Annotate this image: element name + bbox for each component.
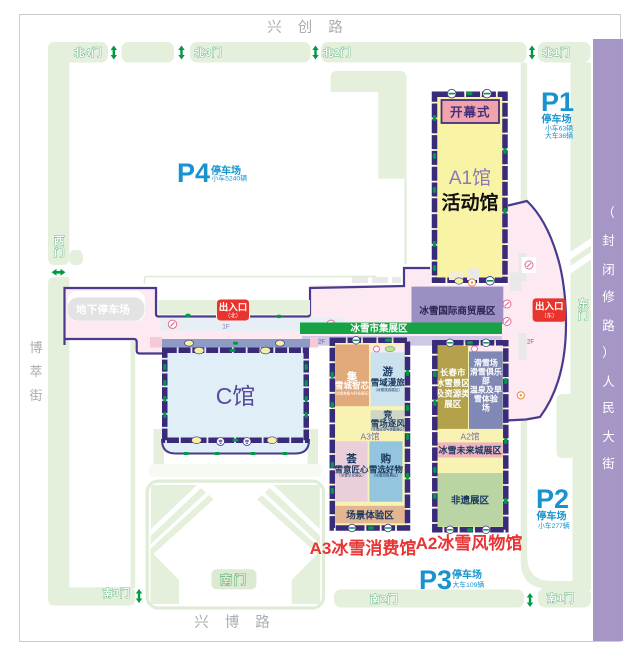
svg-text:大车109辆: 大车109辆 [453,580,485,589]
svg-text:长春市: 长春市 [440,368,466,378]
svg-text:冰雪市集展区: 冰雪市集展区 [350,323,408,335]
svg-text:南3门: 南3门 [102,587,130,600]
svg-text:场景体验区: 场景体验区 [346,510,394,522]
svg-text:活动馆: 活动馆 [441,191,498,214]
svg-text:A2冰雪风物馆: A2冰雪风物馆 [416,533,523,553]
svg-text:雪城智芯: 雪城智芯 [335,381,370,391]
svg-text:部: 部 [482,376,490,386]
svg-text:场: 场 [482,403,490,413]
svg-text:P2: P2 [536,484,569,514]
svg-text:出入口: 出入口 [219,302,248,314]
svg-text:小车277辆: 小车277辆 [538,521,570,530]
svg-text:（东）: （东） [541,312,558,320]
svg-text:A2馆: A2馆 [461,432,480,442]
svg-text:冰雪国际商贸展区: 冰雪国际商贸展区 [419,305,496,317]
svg-text:门: 门 [578,309,589,322]
svg-text:小车63辆: 小车63辆 [545,124,573,133]
svg-text:P3: P3 [419,565,452,595]
svg-text:温泉及旱: 温泉及旱 [470,385,502,395]
svg-text:A1馆: A1馆 [449,167,491,189]
svg-text:P4: P4 [177,158,210,188]
svg-text:北1门: 北1门 [542,46,570,59]
svg-text:封: 封 [602,234,615,248]
svg-text:博: 博 [29,340,42,355]
svg-text:西: 西 [54,235,65,247]
svg-text:冰雪未来城展区: 冰雪未来城展区 [438,445,501,456]
svg-text:南2门: 南2门 [370,593,398,606]
svg-text:P1: P1 [541,87,574,117]
svg-text:（北）: （北） [225,312,242,320]
svg-text:东: 东 [578,297,589,310]
svg-text:萃: 萃 [29,364,42,379]
svg-text:（: （ [602,206,615,220]
svg-text:冰雪景区: 冰雪景区 [436,378,471,388]
svg-text:大: 大 [602,430,615,444]
svg-text:街: 街 [602,457,615,471]
svg-text:）: ） [602,346,615,360]
svg-text:民: 民 [602,401,615,415]
svg-text:开幕式: 开幕式 [450,105,491,120]
svg-text:出入口: 出入口 [535,301,564,313]
svg-text:小车5240辆: 小车5240辆 [212,174,248,183]
svg-text:停车场: 停车场 [452,568,482,581]
svg-text:购: 购 [381,452,392,465]
svg-text:地下停车场: 地下停车场 [76,303,130,316]
svg-text:停车场: 停车场 [542,113,572,126]
svg-text:游: 游 [382,365,393,378]
svg-text:A3馆: A3馆 [361,432,380,442]
svg-text:滑雪场: 滑雪场 [474,358,498,368]
svg-text:门: 门 [54,246,65,259]
svg-text:南1门: 南1门 [546,592,574,605]
svg-text:人: 人 [602,375,615,389]
svg-text:雪体验: 雪体验 [474,394,499,404]
svg-text:兴创路: 兴创路 [267,19,359,36]
svg-text:非遗展区: 非遗展区 [451,495,490,507]
svg-text:修: 修 [602,289,615,304]
svg-text:（冰雪旅游展区）: （冰雪旅游展区） [373,387,402,392]
svg-text:路: 路 [602,318,615,333]
svg-text:及资源类: 及资源类 [436,389,471,399]
svg-text:南门: 南门 [220,572,248,587]
svg-text:大车36辆: 大车36辆 [545,131,573,140]
svg-text:C馆: C馆 [216,383,256,409]
svg-text:雪域漫旅: 雪域漫旅 [371,378,406,388]
svg-text:北4门: 北4门 [74,46,102,59]
svg-text:北2门: 北2门 [323,46,351,59]
svg-text:停车场: 停车场 [537,510,567,523]
svg-text:滑雪俱乐: 滑雪俱乐 [470,367,502,377]
svg-text:街: 街 [29,388,42,403]
svg-text:闭: 闭 [602,263,615,277]
svg-text:展区: 展区 [443,399,462,409]
svg-text:兴博路: 兴博路 [194,614,286,631]
svg-text:（冰雪装备与科技展区）: （冰雪装备与科技展区） [332,391,372,396]
svg-text:2F: 2F [527,340,534,346]
svg-text:荟: 荟 [345,452,357,465]
svg-text:1F: 1F [222,324,230,331]
svg-text:A3冰雪消费馆: A3冰雪消费馆 [310,538,417,558]
svg-text:北3门: 北3门 [194,46,222,59]
svg-text:（冰雪消费展区）: （冰雪消费展区） [372,473,401,478]
svg-text:（冰雪文化展区）: （冰雪文化展区） [337,473,366,478]
svg-text:2F: 2F [318,340,325,346]
